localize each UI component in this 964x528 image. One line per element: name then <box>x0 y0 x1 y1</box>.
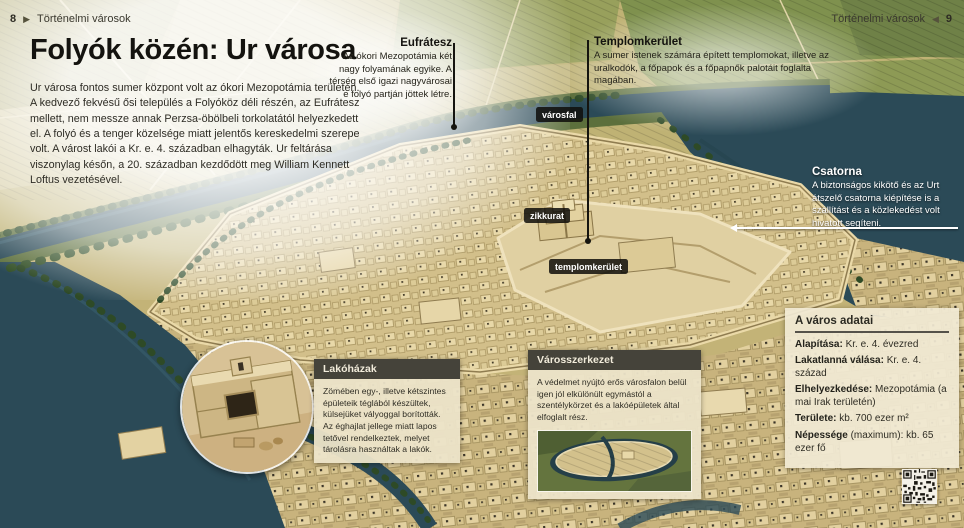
page-title-regular: Folyók közén: <box>30 34 226 66</box>
callout-eufratesz-title: Eufrátesz <box>322 37 452 49</box>
callout-templomkerulet-body: A sumer istenek számára épített templomo… <box>594 50 832 88</box>
house-detail-inset <box>180 340 314 474</box>
fact-row-lakatlanna-valasa: Lakatlanná válása: Kr. e. 4. század <box>795 355 949 381</box>
city-aerial-thumbnail <box>537 430 692 492</box>
callout-templomkerulet-title: Templomkerület <box>594 36 832 48</box>
callout-csatorna: Csatorna A biztonságos kikötő és az Urt … <box>812 166 964 230</box>
page-title: Folyók közén: Ur városa <box>30 34 356 67</box>
callout-templomkerulet: Templomkerület A sumer istenek számára é… <box>594 36 832 88</box>
infobox-varosszerkezet-body: A védelmet nyújtó erős városfalon belül … <box>537 377 692 424</box>
callout-eufratesz: Eufrátesz Az ókori Mezopotámia két nagy … <box>322 37 452 101</box>
callout-eufratesz-body: Az ókori Mezopotámia két nagy folyamának… <box>322 51 452 101</box>
infobox-varosszerkezet-title: Városszerkezet <box>528 350 701 370</box>
map-label-varosfal: városfal <box>536 107 583 122</box>
fact-row-elhelyezkedese: Elhelyezkedése: Mezopotámia (a mai Irak … <box>795 384 949 410</box>
arrow-right-icon: ▶ <box>23 14 30 25</box>
page-header-left: 8 ▶ Történelmi városok <box>10 13 131 25</box>
series-title-right: Történelmi városok <box>831 13 925 25</box>
page-number-left: 8 <box>10 13 16 25</box>
leader-line-templomkerulet <box>587 40 589 242</box>
page-number-right: 9 <box>946 13 952 25</box>
callout-csatorna-title: Csatorna <box>812 166 964 178</box>
fact-row-alapitasa: Alapítása: Kr. e. 4. évezred <box>795 339 949 352</box>
city-facts-box: A város adatai Alapítása: Kr. e. 4. évez… <box>785 308 959 468</box>
series-title-left: Történelmi városok <box>37 13 131 25</box>
callout-csatorna-body: A biztonságos kikötő és az Urt átszelő c… <box>812 180 964 230</box>
infobox-varosszerkezet: Városszerkezet A védelmet nyújtó erős vá… <box>528 350 701 499</box>
fact-row-nepessege: Népessége (maximum): kb. 65 ezer fő <box>795 430 949 456</box>
infobox-lakohazak-body: Zömében egy-, illetve kétszintes épülete… <box>314 379 460 463</box>
house-cutaway-illustration <box>182 342 312 472</box>
infobox-lakohazak: Lakóházak Zömében egy-, illetve kétszint… <box>314 359 460 463</box>
page-header-right: Történelmi városok ◀ 9 <box>831 13 952 25</box>
white-arrow-left-icon <box>737 227 958 229</box>
arrow-left-icon: ◀ <box>932 14 939 25</box>
fact-row-terulete: Területe: kb. 700 ezer m² <box>795 413 949 426</box>
qr-code-icon <box>901 469 938 504</box>
map-label-templomkerulet: templomkerület <box>549 259 628 274</box>
infobox-lakohazak-title: Lakóházak <box>314 359 460 379</box>
map-label-zikkurat: zikkurat <box>524 208 570 223</box>
city-facts-title: A város adatai <box>795 315 949 333</box>
leader-line-eufratesz <box>453 43 455 128</box>
intro-paragraph: Ur városa fontos sumer központ volt az ó… <box>30 81 366 188</box>
magazine-spread: 8 ▶ Történelmi városok Történelmi városo… <box>0 0 964 528</box>
